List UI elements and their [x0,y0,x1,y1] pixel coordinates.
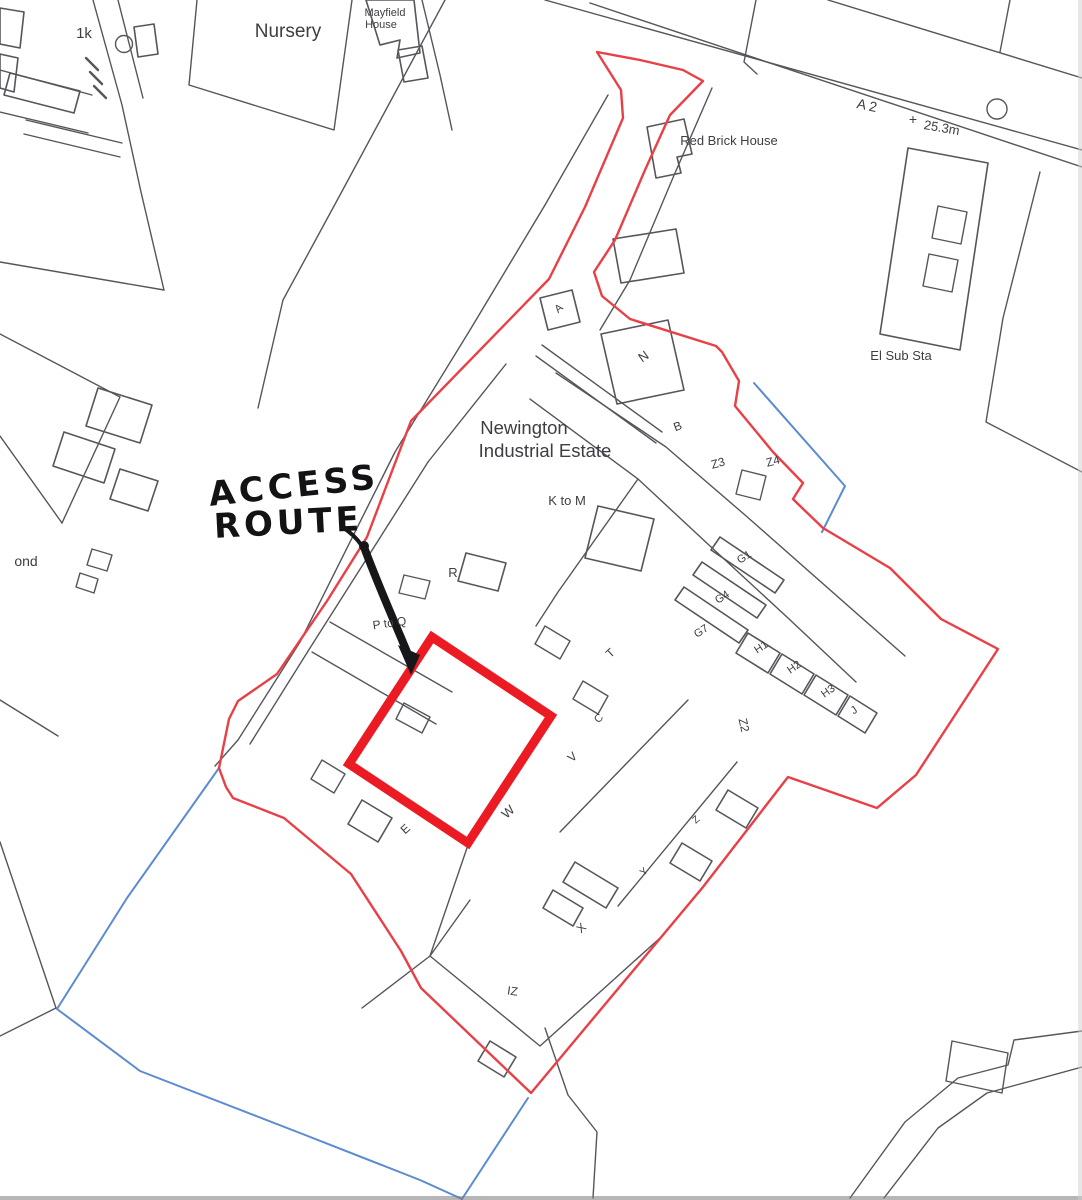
label-unit-c: C [592,712,606,726]
driveway-edge [26,120,122,143]
label-unit-z3: Z3 [709,454,726,471]
site-plan-map: ACCESSROUTE1kNurseryMayfieldHouseA 2+25.… [0,0,1082,1200]
label-unit-e: E [398,821,413,837]
arrow-shaft [364,547,407,652]
mayfield-outbuilding [398,46,428,82]
label-mayfield-house: House [365,19,397,31]
top-right-line [1000,0,1010,52]
g-block-strip [711,537,784,593]
el-sub-sta-inner [923,254,958,292]
tree-symbol [116,36,133,53]
label-unit-h1: H1 [752,639,770,657]
label-red-brick-house: Red Brick House [680,133,778,148]
unit-t-building [535,626,570,659]
small-shed [87,549,112,571]
label-unit-x: X [574,920,589,936]
access-route-annotation-line2: ROUTE [213,499,364,547]
p-to-q-row-edge [330,622,452,692]
cluster-building [110,469,158,511]
blue-line-south [462,1098,528,1199]
lower-plot-line [430,845,468,956]
blue-line-southwest [57,768,462,1199]
hatch-strip [86,58,98,70]
access-route-arrow [342,527,420,675]
label-mayfield-house: Mayfield [365,7,406,19]
ne-plot-line [986,172,1082,472]
scanned-site-plan-page: ACCESSROUTE1kNurseryMayfieldHouseA 2+25.… [0,0,1082,1200]
unit-r-building [458,553,506,591]
unit-y-building [670,843,712,881]
label-unit-h3: H3 [819,683,837,701]
unit-t-building [573,681,608,714]
sw-field-line [0,700,58,736]
road-circle-symbol [987,99,1007,119]
red-highlight-square [349,637,551,843]
label-unit-r: R [448,565,457,580]
label-estate-name: Industrial Estate [479,440,612,461]
label-unit-g1: G1 [735,548,754,566]
a2-road-edge [590,3,1082,167]
map-labels: ACCESSROUTE1kNurseryMayfieldHouseA 2+25.… [14,7,961,999]
label-spot-height: 25.3m [923,117,961,138]
plot-line-left [0,262,164,290]
label-unit-a: A [552,301,566,315]
z3-z4-step-rect [736,470,766,500]
label-unit-b: B [671,418,683,434]
plot-jog [744,0,757,74]
unit-e-building [311,760,345,793]
field-diagonal [258,0,445,408]
lower-plot-line [362,956,430,1008]
bottom-stream-line [545,1028,597,1198]
g-block-strip [675,587,748,643]
unit-x-building [543,890,583,926]
se-track-edge [884,1067,1082,1198]
se-track-edge [850,1031,1082,1198]
plot-boundary [560,700,688,832]
left-edge-building [0,8,24,48]
label-unit-y: Y [638,866,651,879]
small-building-1k [134,24,158,57]
red-site-boundary [219,52,998,1093]
label-1k: 1k [76,25,92,42]
benchmark-cross: + [909,111,917,127]
plot-boundary [618,762,737,906]
label-estate-name: Newington [480,417,567,438]
scan-edge-bottom [0,1196,1082,1200]
label-unit-z: Z [690,814,702,826]
lower-plot-line [430,900,470,956]
label-pond-partial: ond [14,553,37,569]
sw-field-line [0,842,56,1008]
hatch-strip [90,72,102,84]
g-block-strip [693,562,766,618]
label-unit-n: N [635,347,651,365]
estate-spine-road [556,373,905,656]
label-nursery: Nursery [255,21,322,42]
label-unit-z4: Z4 [764,452,781,469]
small-shed [76,573,98,593]
scan-edge-right [1078,0,1082,1200]
label-unit-h2: H2 [785,659,803,677]
label-unit-k-to-m: K to M [548,493,586,508]
mid-left-field-line [0,436,62,523]
a2-road-edge [545,0,1082,150]
small-rect-near-p-to-q [399,575,430,599]
label-unit-iz: IZ [506,983,519,998]
label-el-sub-sta: El Sub Sta [870,348,932,363]
label-unit-z2: Z2 [736,717,753,734]
unit-e-building [348,800,392,842]
driveway-edge [24,134,120,157]
label-a2-road: A 2 [855,95,878,115]
label-unit-t: T [603,645,618,661]
el-sub-sta-building [880,148,988,350]
nursery-plot [189,0,352,130]
el-sub-sta-inner [932,206,967,244]
label-unit-j: J [849,704,860,717]
label-unit-g7: G7 [692,622,711,640]
sw-field-line [0,1008,56,1036]
left-plot-line [0,112,88,133]
mayfield-strip-edge [422,0,452,130]
mid-left-field-line [0,334,120,523]
label-unit-w: W [498,801,518,821]
hatch-strip [94,86,106,98]
field-line-ne [828,0,1082,78]
label-unit-v: V [565,749,580,765]
